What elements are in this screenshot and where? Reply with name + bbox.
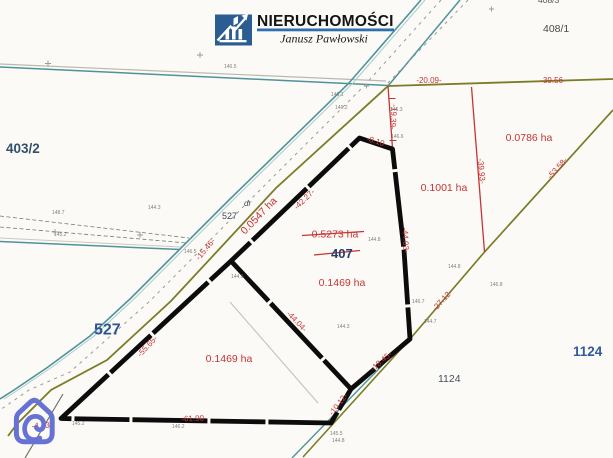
- svg-text:144.9: 144.9: [231, 274, 244, 280]
- svg-text:145.2: 145.2: [54, 232, 67, 238]
- svg-text:403/2: 403/2: [6, 141, 40, 156]
- svg-text:1124: 1124: [573, 344, 603, 359]
- svg-text:527: 527: [222, 211, 237, 221]
- svg-text:144.3: 144.3: [148, 205, 161, 211]
- svg-text:145.5: 145.5: [330, 431, 343, 437]
- svg-text:-44.03-: -44.03-: [400, 227, 410, 253]
- svg-text:0.1469 ha: 0.1469 ha: [206, 353, 253, 365]
- svg-text:144.8: 144.8: [448, 264, 461, 270]
- svg-text:146.3: 146.3: [390, 107, 403, 113]
- svg-text:408/1: 408/1: [543, 23, 569, 35]
- svg-text:146.5: 146.5: [184, 249, 197, 255]
- svg-text:Janusz Pawłowski: Janusz Pawłowski: [280, 32, 368, 46]
- svg-text:146.5: 146.5: [224, 64, 237, 70]
- svg-text:144.8: 144.8: [332, 438, 345, 444]
- svg-text:0.1001 ha: 0.1001 ha: [421, 182, 468, 194]
- svg-text:146.6: 146.6: [391, 134, 404, 140]
- svg-text:148.7: 148.7: [52, 210, 65, 216]
- svg-text:407: 407: [331, 246, 353, 261]
- svg-text:-20.09-: -20.09-: [416, 76, 442, 85]
- svg-text:408/3: 408/3: [538, 0, 560, 5]
- svg-text:146.2: 146.2: [335, 105, 348, 111]
- svg-text:146.1: 146.1: [331, 92, 344, 98]
- svg-text:146.8: 146.8: [490, 282, 503, 288]
- svg-text:145.2: 145.2: [72, 421, 85, 427]
- svg-text:dr: dr: [244, 199, 251, 208]
- svg-text:-61.90-: -61.90-: [181, 414, 207, 424]
- svg-text:-39.56-: -39.56-: [540, 76, 566, 85]
- svg-text:144.3: 144.3: [337, 324, 350, 330]
- svg-text:NIERUCHOMOŚCI: NIERUCHOMOŚCI: [257, 12, 394, 30]
- svg-text:527: 527: [94, 322, 121, 339]
- svg-text:146.2: 146.2: [172, 424, 185, 430]
- svg-text:0.1469 ha: 0.1469 ha: [319, 277, 366, 289]
- svg-text:146.7: 146.7: [412, 299, 425, 305]
- svg-text:1124: 1124: [438, 373, 461, 385]
- svg-text:0.0786 ha: 0.0786 ha: [506, 132, 553, 144]
- svg-text:144.8: 144.8: [368, 237, 381, 243]
- svg-text:144.7: 144.7: [424, 319, 437, 325]
